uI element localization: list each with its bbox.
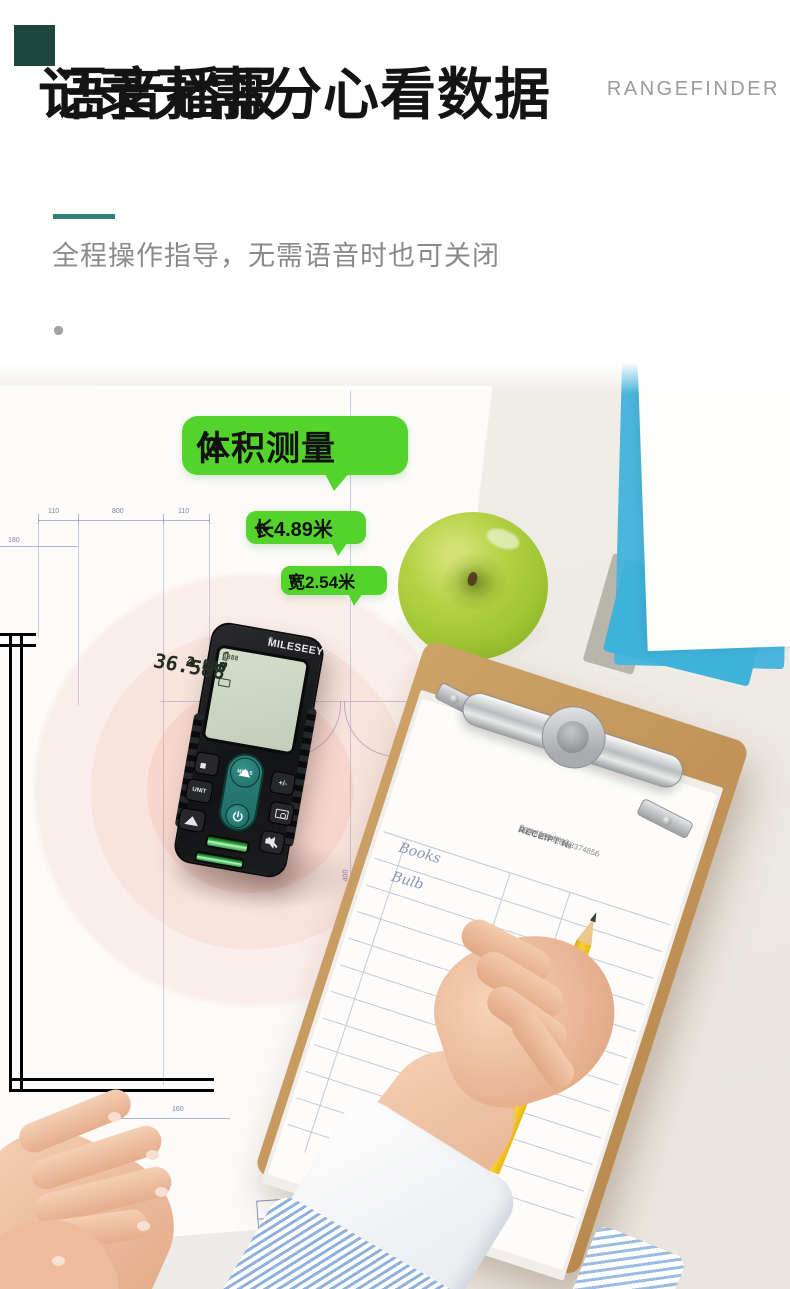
fingernail	[52, 1256, 65, 1266]
title-accent-underline	[53, 214, 115, 219]
area-icon	[201, 763, 213, 765]
mute-button[interactable]	[259, 830, 286, 856]
lcd-status-row: 1888	[222, 651, 224, 660]
blueprint-dim-line	[38, 520, 210, 521]
bubble-tail	[324, 472, 350, 491]
dim-label: 160	[172, 1106, 184, 1113]
fingernail	[155, 1187, 168, 1197]
measure-button[interactable]: MEAS	[228, 755, 263, 790]
bubble-tail	[348, 593, 363, 606]
device-lcd: 1888 4.890m2.545m2.940m36.588m³	[201, 644, 310, 756]
power-icon	[230, 808, 245, 823]
indirect-measure-button[interactable]	[177, 807, 206, 833]
dim-label: 180	[8, 537, 20, 544]
clip-hole	[553, 717, 593, 757]
title-line-2: 记录无需分心看数据	[38, 60, 551, 130]
lcd-unit: m³	[218, 660, 228, 669]
subtitle: 全程操作指导，无需语音时也可关闭	[52, 234, 500, 273]
reference-icon	[274, 808, 288, 819]
fingernail	[146, 1150, 159, 1160]
pencil-wood-tip	[577, 915, 602, 946]
blueprint-line	[38, 520, 39, 638]
apple-highlight	[484, 525, 522, 554]
poster: RANGEFINDER 语音播报 记录无需分心看数据 全程操作指导，无需语音时也…	[0, 0, 790, 1289]
bubble-text: 长4.89米	[254, 513, 333, 542]
mute-speaker-icon	[264, 835, 280, 849]
plus-minus-button[interactable]: +/-	[269, 770, 296, 796]
bubble-tail	[331, 542, 348, 556]
plus-minus-label: +/-	[278, 779, 287, 787]
pyramid-icon	[184, 815, 199, 826]
dim-label: 800	[112, 508, 124, 515]
dim-label: 110	[178, 508, 189, 515]
pencil-lead	[590, 911, 599, 923]
fingernail	[137, 1221, 150, 1231]
bubble-text: 体积测量	[196, 421, 336, 470]
power-button[interactable]	[223, 802, 251, 830]
voice-bubble-width: 宽2.54米	[281, 566, 387, 595]
registered-mark: ®	[268, 637, 274, 644]
bubble-text: 宽2.54米	[288, 568, 355, 593]
reference-button[interactable]	[268, 801, 295, 827]
area-volume-button[interactable]	[193, 751, 220, 777]
fingernail	[108, 1112, 121, 1122]
blueprint-wall	[9, 633, 23, 1091]
voice-bubble-length: 长4.89米	[246, 511, 366, 544]
voice-bubble-volume: 体积测量	[182, 416, 408, 475]
green-apple	[398, 512, 548, 660]
dim-label: 110	[48, 508, 59, 515]
blueprint-dim-line	[0, 546, 78, 547]
lcd-readings: 4.890m2.545m2.940m36.588m³	[228, 661, 307, 675]
unit-button[interactable]: UNIT	[184, 778, 213, 804]
unit-button-label: UNIT	[192, 787, 207, 795]
